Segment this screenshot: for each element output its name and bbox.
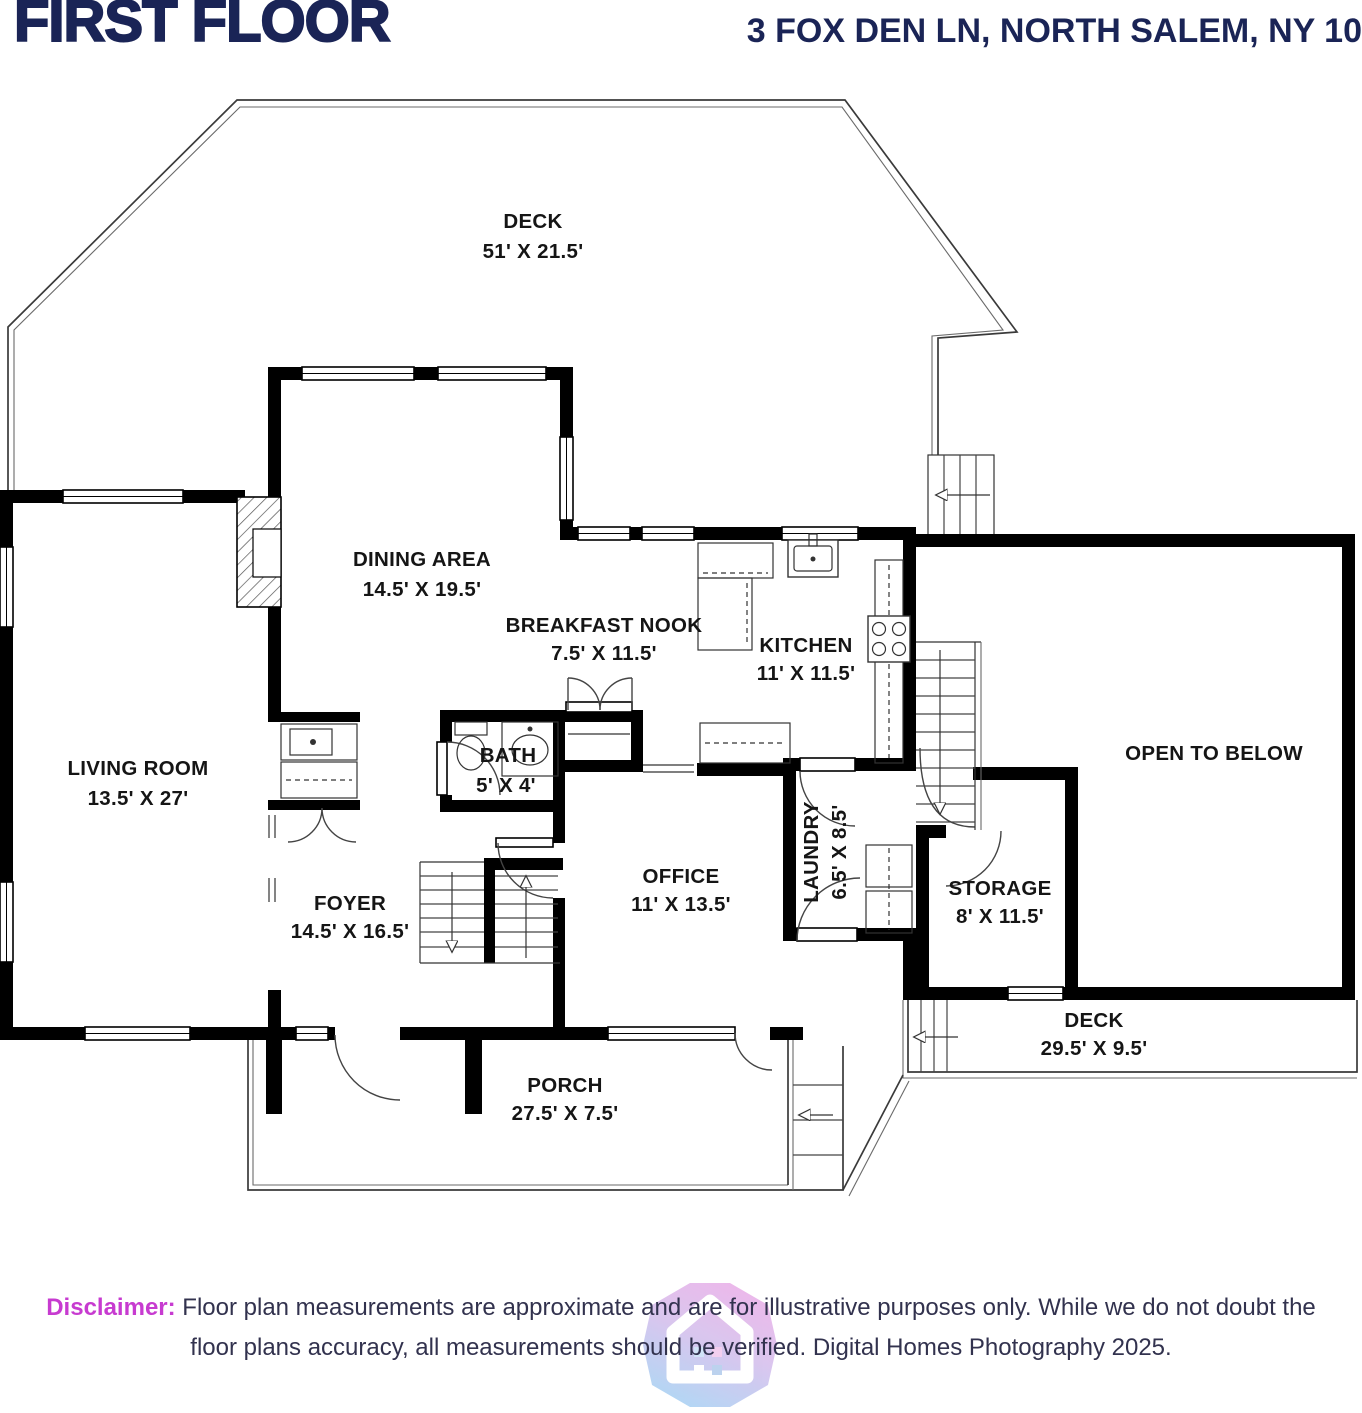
svg-text:51' X 21.5': 51' X 21.5' xyxy=(483,240,584,263)
disclaimer-line-1: Disclaimer: Floor plan measurements are … xyxy=(0,1288,1362,1328)
deck-stairs-icon xyxy=(928,455,994,535)
room-label-porch: PORCH 27.5' X 7.5' xyxy=(512,1074,619,1125)
svg-text:6.5' X 8.5': 6.5' X 8.5' xyxy=(828,804,851,899)
svg-text:DECK: DECK xyxy=(503,210,562,233)
svg-text:BREAKFAST NOOK: BREAKFAST NOOK xyxy=(506,614,703,637)
door-threshold xyxy=(437,742,447,795)
porch-column xyxy=(266,1040,282,1114)
window xyxy=(296,1027,328,1040)
svg-text:STORAGE: STORAGE xyxy=(948,877,1051,900)
walls xyxy=(0,367,1355,1040)
landing-door-arc xyxy=(920,748,975,827)
kitchen-stove-icon xyxy=(868,616,910,662)
svg-text:LAUNDRY: LAUNDRY xyxy=(800,801,823,903)
deck-top-outline xyxy=(8,100,1017,535)
room-label-dining-area: DINING AREA 14.5' X 19.5' xyxy=(353,548,491,601)
room-label-bath: BATH 5' X 4' xyxy=(476,744,536,797)
svg-text:14.5' X 19.5': 14.5' X 19.5' xyxy=(363,578,482,601)
window xyxy=(578,527,630,540)
room-label-storage: STORAGE 8' X 11.5' xyxy=(948,877,1051,928)
chimney-hatch-icon xyxy=(237,497,281,607)
disclaimer-label: Disclaimer: xyxy=(46,1294,175,1321)
room-label-office: OFFICE 11' X 13.5' xyxy=(631,865,731,916)
washer-dryer-icon xyxy=(866,845,912,933)
svg-text:5' X 4': 5' X 4' xyxy=(476,774,536,797)
svg-text:14.5' X 16.5': 14.5' X 16.5' xyxy=(291,920,410,943)
window xyxy=(642,527,694,540)
door-threshold xyxy=(797,928,857,941)
entry-door-arc xyxy=(335,1035,400,1100)
porch-column xyxy=(465,1040,482,1114)
svg-text:DINING AREA: DINING AREA xyxy=(353,548,491,571)
svg-text:27.5' X 7.5': 27.5' X 7.5' xyxy=(512,1102,619,1125)
svg-text:KITCHEN: KITCHEN xyxy=(759,634,852,657)
room-label-foyer: FOYER 14.5' X 16.5' xyxy=(291,892,410,943)
stairs-kitchen xyxy=(916,642,981,830)
svg-text:BATH: BATH xyxy=(480,744,537,767)
kitchen-counter xyxy=(698,578,752,650)
door-threshold xyxy=(496,838,553,847)
rear-deck-steps-icon xyxy=(916,1000,958,1072)
svg-text:DECK: DECK xyxy=(1064,1009,1123,1032)
svg-text:OFFICE: OFFICE xyxy=(643,865,720,888)
wet-bar-door-arc xyxy=(322,808,356,842)
room-label-breakfast-nook: BREAKFAST NOOK 7.5' X 11.5' xyxy=(506,614,703,665)
svg-text:13.5' X 27': 13.5' X 27' xyxy=(88,787,189,810)
wet-bar xyxy=(281,724,357,798)
window xyxy=(0,547,13,627)
svg-text:7.5' X 11.5': 7.5' X 11.5' xyxy=(551,642,657,665)
room-label-open-to-below: OPEN TO BELOW xyxy=(1125,742,1303,765)
svg-text:11' X 13.5': 11' X 13.5' xyxy=(631,893,731,916)
back-door-arc xyxy=(735,1033,772,1070)
window xyxy=(560,437,573,520)
window xyxy=(782,527,858,540)
room-label-deck-rear: DECK 29.5' X 9.5' xyxy=(1041,1009,1148,1060)
disclaimer: Disclaimer: Floor plan measurements are … xyxy=(0,1288,1362,1368)
window xyxy=(85,1027,190,1040)
svg-text:OPEN TO BELOW: OPEN TO BELOW xyxy=(1125,742,1303,765)
window xyxy=(63,490,183,503)
window xyxy=(0,882,13,962)
svg-text:8' X 11.5': 8' X 11.5' xyxy=(956,905,1044,928)
kitchen-sink-icon xyxy=(788,534,838,577)
window xyxy=(438,367,546,380)
svg-text:PORCH: PORCH xyxy=(527,1074,603,1097)
room-label-living-room: LIVING ROOM 13.5' X 27' xyxy=(67,757,208,810)
svg-text:11' X 11.5': 11' X 11.5' xyxy=(757,662,856,685)
door-threshold xyxy=(800,758,855,771)
disclaimer-line-2: floor plans accuracy, all measurements s… xyxy=(0,1328,1362,1368)
floor-plan-page: { "header": { "title": "FIRST FLOOR", "a… xyxy=(0,0,1362,1413)
porch-steps-icon xyxy=(793,1085,843,1155)
floor-plan-drawing: DECK 51' X 21.5' DINING AREA 14.5' X 19.… xyxy=(0,0,1362,1413)
window xyxy=(302,367,414,380)
svg-text:FOYER: FOYER xyxy=(314,892,386,915)
svg-text:LIVING ROOM: LIVING ROOM xyxy=(67,757,208,780)
window xyxy=(608,1027,735,1040)
svg-text:29.5' X 9.5': 29.5' X 9.5' xyxy=(1041,1037,1148,1060)
room-label-kitchen: KITCHEN 11' X 11.5' xyxy=(757,634,856,685)
window xyxy=(1008,987,1063,1000)
wet-bar-door-arc xyxy=(288,808,322,842)
room-label-deck-top: DECK 51' X 21.5' xyxy=(483,210,584,263)
